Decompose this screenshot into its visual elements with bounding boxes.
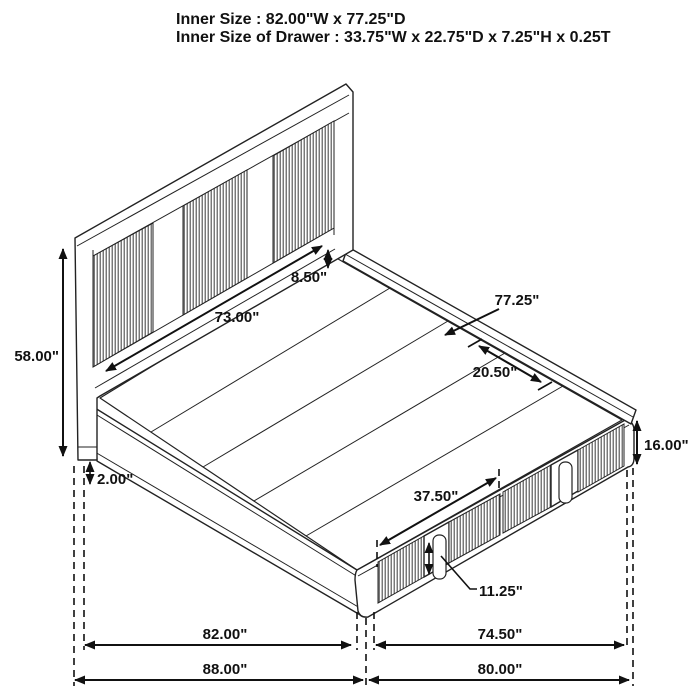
dim-side-inner-length-label: 82.00" — [203, 626, 248, 643]
dim-headboard-inner-width-label: 73.00" — [215, 309, 260, 326]
dim-footboard-height-label: 16.00" — [644, 437, 689, 454]
dim-foot-inner-width-label: 74.50" — [478, 626, 523, 643]
dim-footboard-height: 16.00" — [637, 421, 689, 464]
dim-frame-bottom-gap-label: 2.00" — [97, 471, 133, 488]
dim-drawer-handle-height-label: 11.25" — [479, 583, 523, 600]
bed-dimension-diagram: 58.00" 2.00" 73.00" 8.50" 77.25" 20.50" … — [0, 0, 700, 700]
dim-drawer-front-width-label: 37.50" — [414, 488, 459, 505]
drawer-handle — [433, 535, 446, 579]
dim-headboard-to-deck-gap-label: 8.50" — [291, 269, 327, 286]
dim-side-overall-length-label: 88.00" — [203, 661, 248, 678]
title-block: Inner Size : 82.00"W x 77.25"D Inner Siz… — [176, 11, 611, 46]
diagram-svg: 58.00" 2.00" 73.00" 8.50" 77.25" 20.50" … — [0, 0, 700, 700]
dim-platform-depth-label: 77.25" — [495, 292, 540, 309]
dim-headboard-height-label: 58.00" — [14, 348, 59, 365]
drawer-handle — [559, 462, 572, 503]
title-line-1: Inner Size : 82.00"W x 77.25"D — [176, 11, 406, 28]
dim-foot-inner-width: 74.50" — [376, 626, 624, 645]
dim-foot-overall-width: 80.00" — [369, 661, 629, 680]
title-line-2: Inner Size of Drawer : 33.75"W x 22.75"D… — [176, 29, 611, 46]
dim-side-inner-length: 82.00" — [85, 626, 351, 645]
dim-foot-overall-width-label: 80.00" — [478, 661, 523, 678]
dim-headboard-height: 58.00" — [14, 249, 63, 456]
dim-side-overall-length: 88.00" — [75, 661, 363, 680]
dim-slat-gap-label: 20.50" — [473, 364, 518, 381]
bed-drawing — [75, 84, 636, 617]
